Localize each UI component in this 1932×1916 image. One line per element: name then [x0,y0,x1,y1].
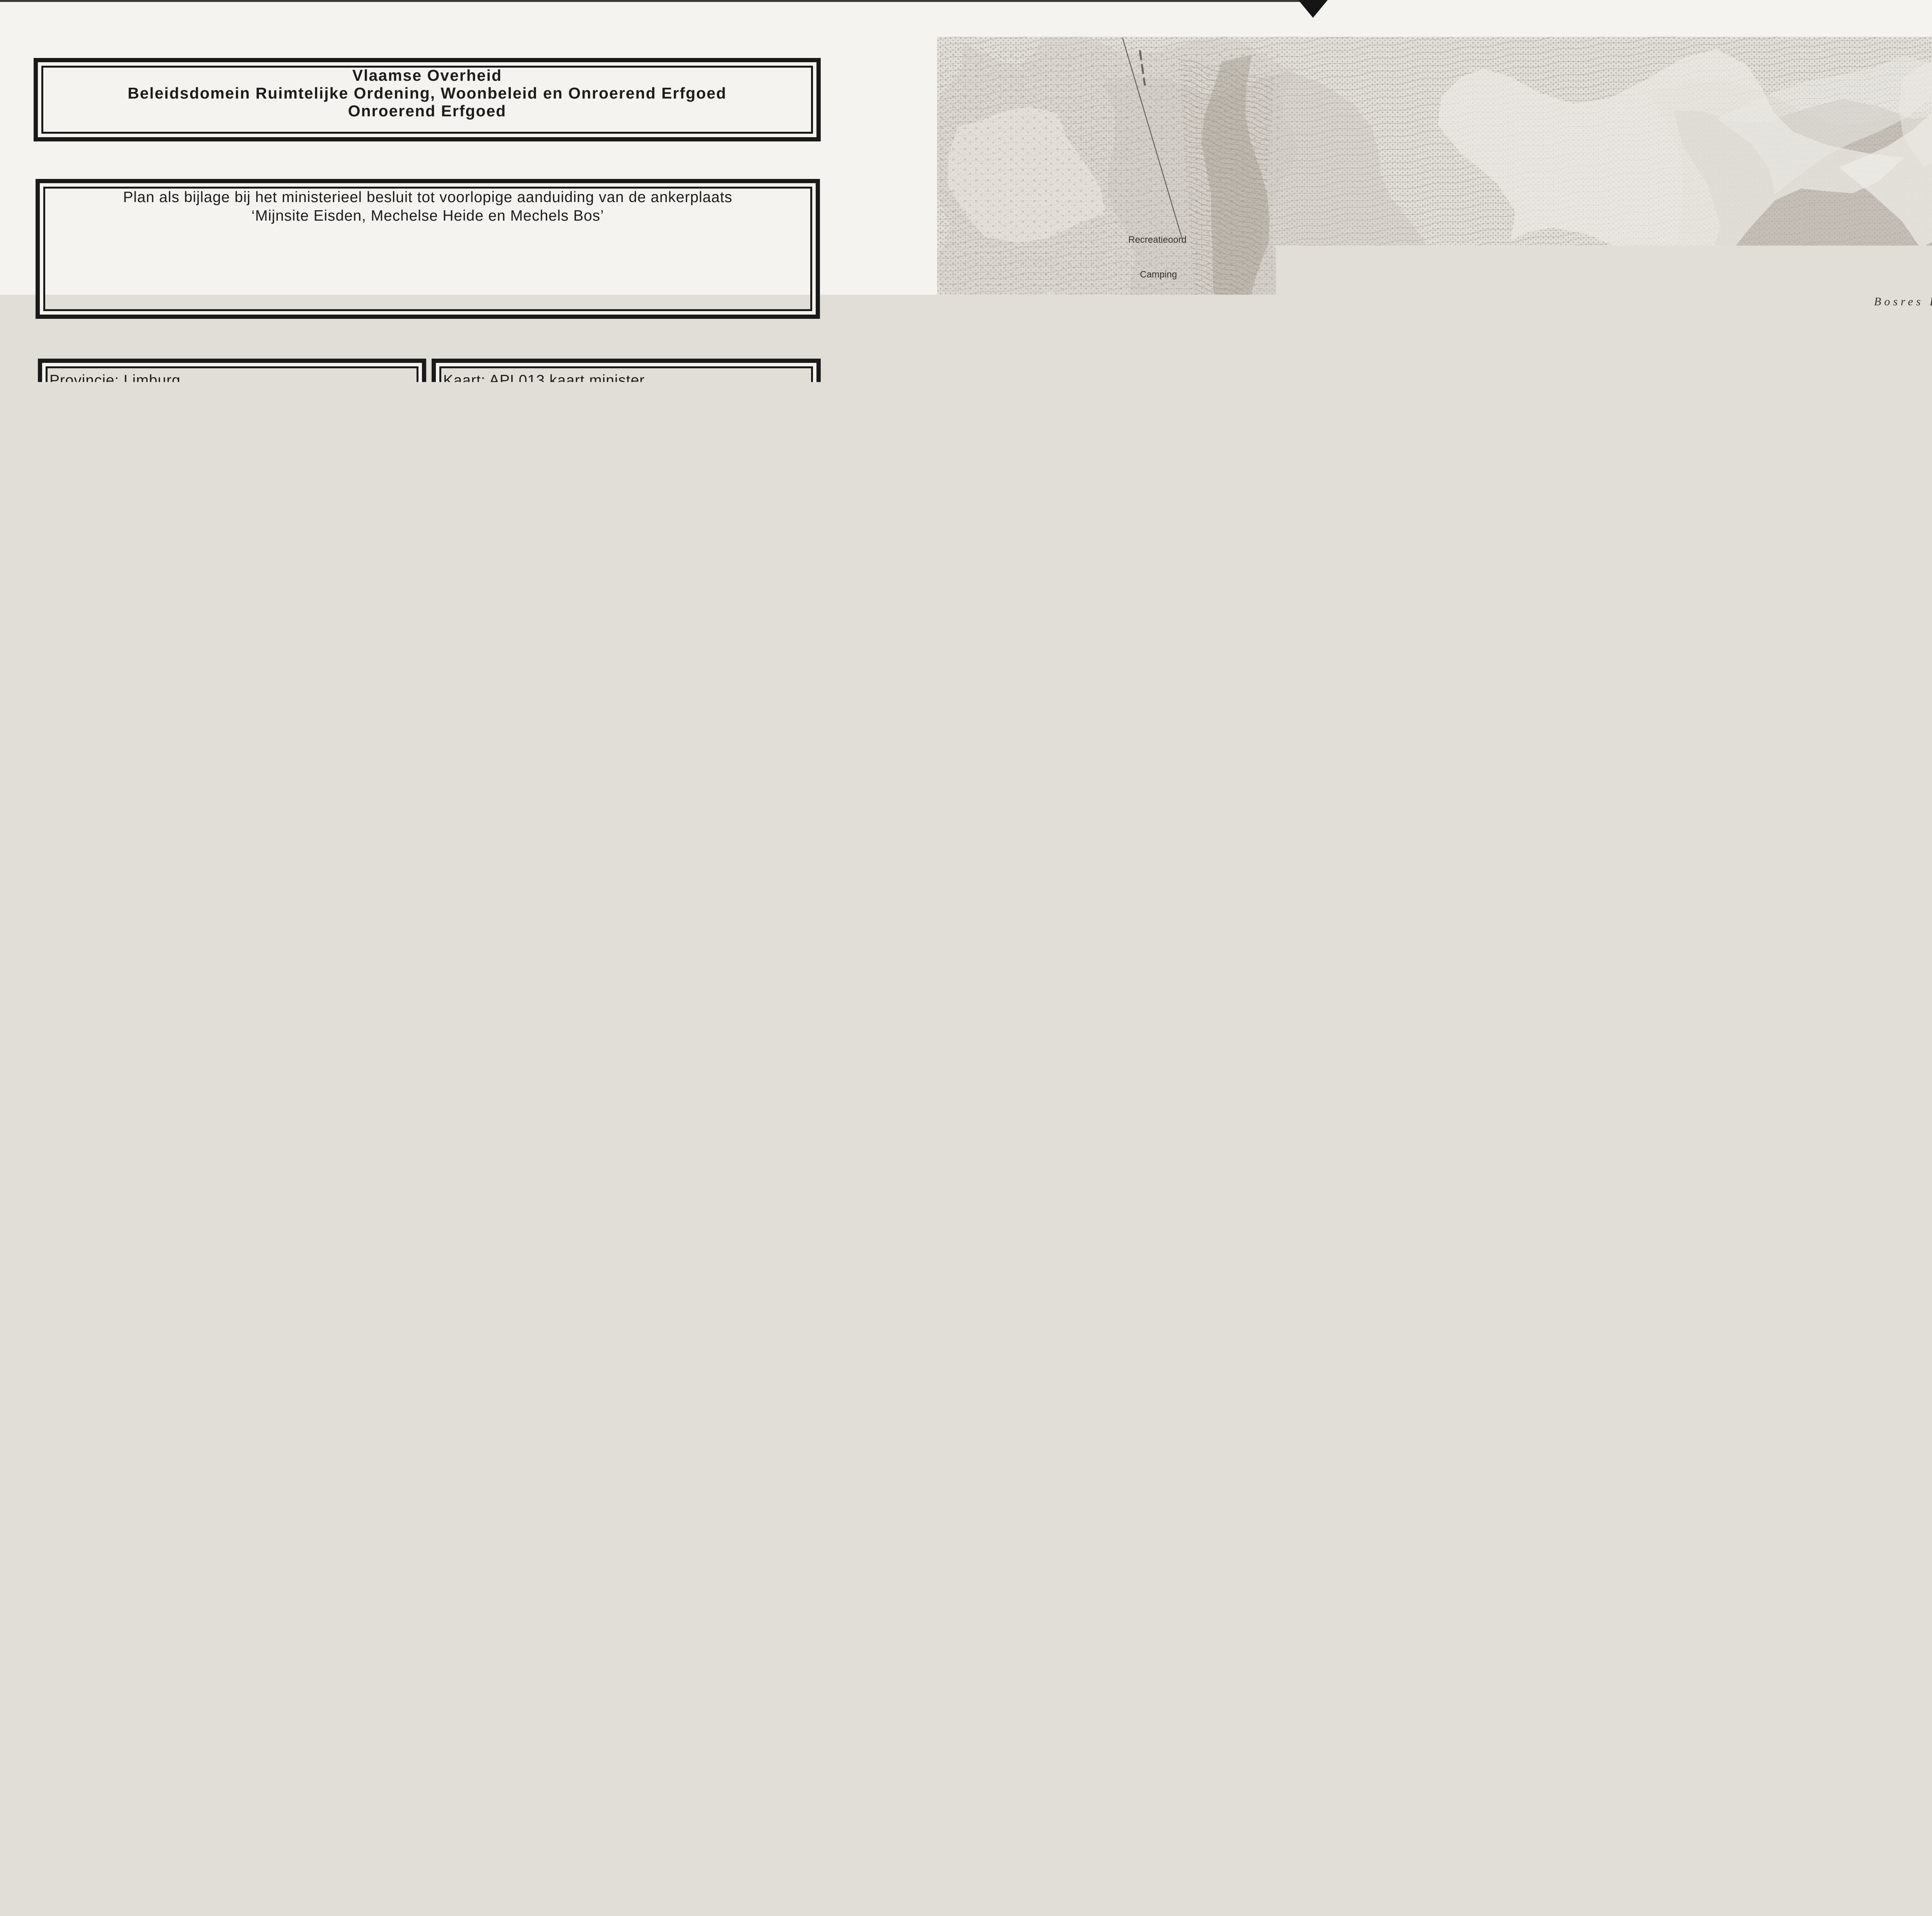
svg-text:MILITAIR DOMEIN: MILITAIR DOMEIN [923,1753,1066,1765]
svg-text:de Kikbeek: de Kikbeek [1611,1718,1708,1732]
svg-text:Nieuw Homo: Nieuw Homo [1592,606,1653,618]
svg-text:Groot Homo: Groot Homo [1712,513,1770,525]
svg-text:Op de Berg: Op de Berg [1492,1002,1547,1014]
svg-text:Molenblook: Molenblook [43,1620,104,1632]
svg-text:Klein Homo: Klein Homo [1526,597,1579,609]
svg-text:AS.: AS. [983,714,1007,730]
svg-text:Vosseberg: Vosseberg [217,1847,272,1859]
svg-text:Grindgroeve: Grindgroeve [1198,853,1262,865]
svg-text:Statiewijk: Statiewijk [1206,624,1256,636]
svg-text:Grote Heide: Grote Heide [837,1521,956,1537]
svg-text:Vallei van: Vallei van [1569,1685,1660,1700]
svg-text:Meisberg: Meisberg [1912,1173,1932,1187]
svg-text:Recreatieoord: Recreatieoord [1128,235,1187,245]
svg-text:Heiwijk: Heiwijk [1313,1651,1397,1667]
svg-text:Bosheide: Bosheide [1480,628,1520,640]
svg-text:Rouwmortelsheide: Rouwmortelsheide [1480,374,1616,387]
svg-text:Bosres Dilserbos: Bosres Dilserbos [1874,295,1932,308]
svg-text:Camping: Camping [1140,269,1177,280]
svg-text:H O G E K E M P E N: H O G E K E M P E N [1495,1520,1932,1540]
svg-text:Lanklaarderbos: Lanklaarderbos [1905,704,1932,718]
svg-text:Bedrijventerrein: Bedrijventerrein [1468,979,1544,991]
svg-text:Rouwmortel: Rouwmortel [1657,410,1711,422]
svg-text:Wiemesmeer: Wiemesmeer [565,1762,632,1774]
svg-text:Niel-bij-As: Niel-bij-As [1194,584,1304,601]
svg-text:Kattevennen: Kattevennen [349,1661,479,1676]
svg-text:Dennengaarde: Dennengaarde [1349,641,1429,654]
svg-text:Mechelse Heide: Mechelse Heide [1398,1257,1595,1275]
svg-text:Mechels Bos: Mechels Bos [1785,1060,1932,1078]
svg-text:N A T I O N A A L P A R K: N A T I O N A A L P A R K [1182,1199,1708,1220]
